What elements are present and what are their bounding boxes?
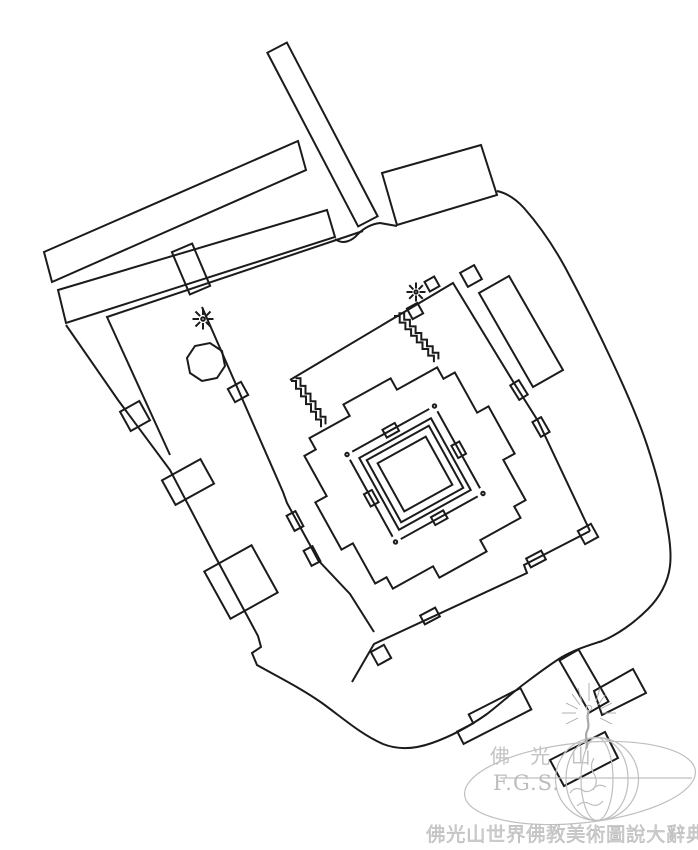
tree-symbol-icon	[407, 283, 426, 302]
pavilions	[120, 265, 598, 665]
encyclopedia-caption: 佛光山世界佛教美術圖說大辭典	[426, 823, 698, 846]
gallery-stair-icon	[287, 511, 304, 531]
stepped-platform-outline	[280, 343, 549, 612]
site-plan-drawing: 佛 光 山 F.G.S. 佛光山世界佛教美術圖說大辭典	[0, 0, 698, 850]
west-pavilion-rect	[162, 459, 214, 505]
gallery-stair-icon	[420, 608, 440, 625]
inner-court-wall-north	[290, 283, 590, 531]
tree-symbol-icon	[193, 309, 214, 330]
west-pavilion-small	[120, 401, 150, 431]
site-boundary-outline	[66, 191, 671, 748]
garden-features	[187, 283, 426, 382]
west-stepped-ramp-edge	[296, 378, 326, 424]
small-shrine-northeast	[460, 265, 482, 287]
gate-building-northeast	[382, 145, 497, 225]
watermark-sunburst-icon	[562, 683, 616, 724]
watermark-org-name-en: F.G.S.	[493, 771, 560, 795]
courtyard-walls	[202, 283, 590, 682]
corner-shrine-south	[371, 645, 391, 665]
watermark-org-name-cn: 佛 光 山	[490, 744, 598, 768]
small-shrine-north	[425, 277, 440, 292]
south-l-building	[453, 688, 532, 744]
east-hall	[479, 276, 563, 387]
upper-terrace-outer	[359, 418, 470, 529]
corner-shrine-west	[228, 382, 248, 402]
scanned-plan-page: 佛 光 山 F.G.S. 佛光山世界佛教美術圖說大辭典	[0, 0, 698, 850]
upper-terrace-inner	[367, 426, 464, 523]
plan-linework	[44, 43, 671, 786]
terrace-balustrade	[341, 400, 489, 548]
central-temple	[280, 343, 549, 612]
stepped-ramps	[291, 313, 438, 427]
west-terrace-wall	[202, 307, 374, 632]
site-boundary	[66, 191, 671, 748]
boundary-dip-under-stair	[335, 223, 397, 242]
north-stepped-ramp-edge	[399, 313, 439, 359]
grand-approach-stair	[267, 43, 377, 227]
octagonal-basin	[187, 343, 225, 381]
